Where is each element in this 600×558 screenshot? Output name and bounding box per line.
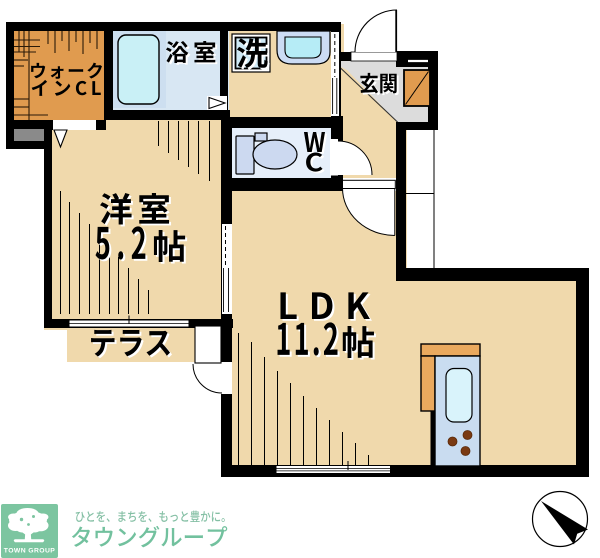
svg-text:TOWN GROUP: TOWN GROUP: [4, 548, 56, 555]
